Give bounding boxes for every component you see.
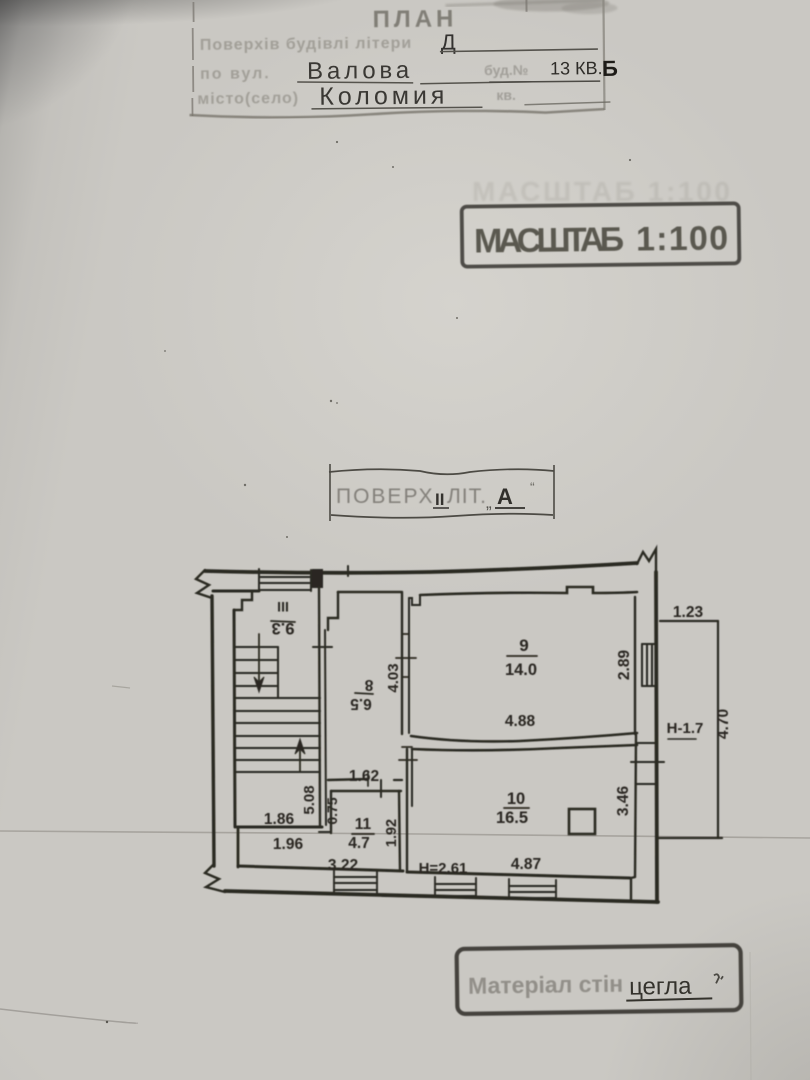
svg-text:1.86: 1.86 [264,811,295,828]
svg-text:4.70: 4.70 [715,709,732,739]
svg-text:кв.: кв. [496,87,516,103]
svg-text:„: „ [486,493,492,512]
svg-text:16.5: 16.5 [496,809,528,827]
svg-text:4.87: 4.87 [511,856,541,873]
svg-text:Коломия: Коломия [319,82,444,111]
svg-text:3.22: 3.22 [328,857,358,874]
svg-text:ЛІТ.: ЛІТ. [447,485,487,508]
svg-text:13 КВ.: 13 КВ. [550,58,603,79]
svg-text:11: 11 [355,816,372,833]
svg-text:2.89: 2.89 [616,650,633,681]
svg-text:Н-1.7: Н-1.7 [667,720,704,737]
svg-text:9: 9 [519,636,528,655]
svg-text:1:100: 1:100 [636,219,728,258]
svg-text:ІІ: ІІ [435,490,444,509]
svg-text:цегла: цегла [629,973,692,1001]
svg-text:5.08: 5.08 [301,785,318,814]
svg-text:ІІІ: ІІІ [277,599,289,615]
svg-text:4.7: 4.7 [348,835,370,852]
svg-text:по вул.: по вул. [200,65,271,83]
svg-text:А: А [497,484,513,509]
svg-text:буд.№: буд.№ [484,62,528,78]
svg-text:1.92: 1.92 [384,819,400,847]
svg-text:14.0: 14.0 [505,661,537,679]
svg-text:1.96: 1.96 [273,836,304,853]
svg-text:4.03: 4.03 [385,663,402,692]
svg-text:1.23: 1.23 [673,604,704,621]
svg-text:1.62: 1.62 [349,768,379,785]
svg-text:10: 10 [507,790,525,808]
svg-text:ПОВЕРХ: ПОВЕРХ [336,485,435,508]
svg-text:МАСШТАБ: МАСШТАБ [474,221,624,261]
svg-text:6.5: 6.5 [350,695,372,712]
svg-text:“: “ [530,479,535,495]
svg-text:4.88: 4.88 [505,713,536,730]
svg-text:Валова: Валова [307,57,410,85]
svg-text:Поверхів будівлі літери: Поверхів будівлі літери [200,35,413,54]
svg-text:8: 8 [364,676,373,693]
svg-text:Матеріал стін: Матеріал стін [468,971,623,999]
svg-text:місто(село): місто(село) [197,90,299,108]
svg-text:Б: Б [602,56,618,81]
svg-text:Н=2.61: Н=2.61 [419,860,468,877]
svg-text:3.46: 3.46 [615,786,632,817]
